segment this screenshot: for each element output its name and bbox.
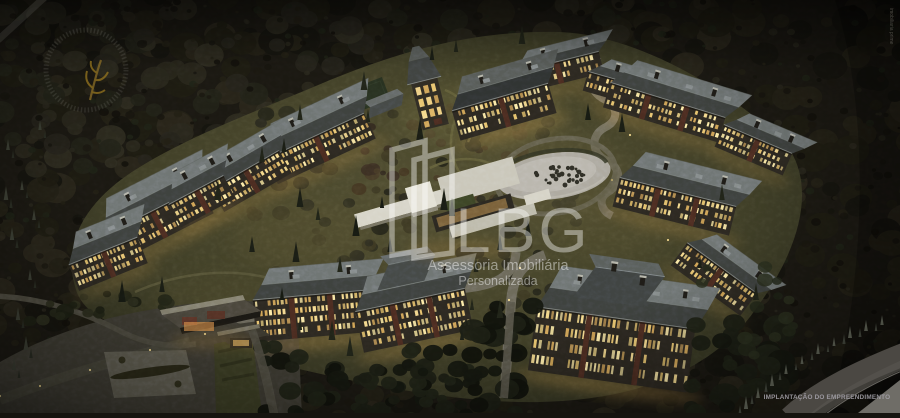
- svg-text:LBG: LBG: [455, 196, 590, 266]
- svg-text:IMPLANTAÇÃO DO EMPREENDIMENTO: IMPLANTAÇÃO DO EMPREENDIMENTO: [764, 392, 891, 401]
- svg-text:Personalizada: Personalizada: [458, 274, 537, 288]
- svg-text:imobiliaria prime: imobiliaria prime: [888, 8, 894, 45]
- svg-text:Assessoria Imobiliária: Assessoria Imobiliária: [427, 258, 569, 274]
